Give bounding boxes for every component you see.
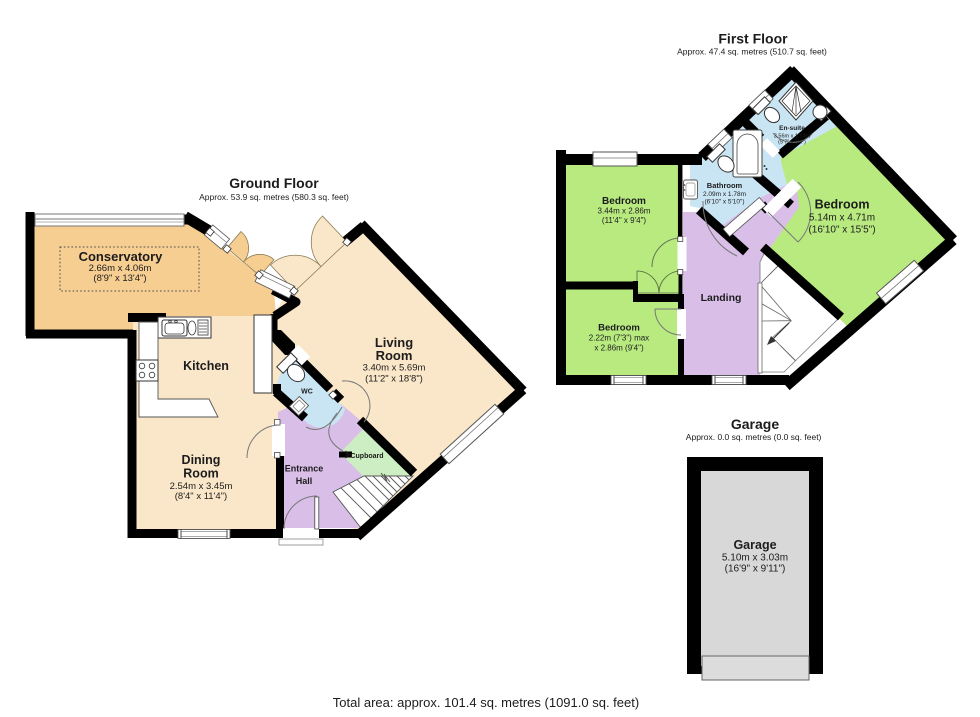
svg-text:First Floor: First Floor	[718, 31, 788, 47]
svg-text:(6'10" x 5'10"): (6'10" x 5'10")	[705, 199, 745, 206]
svg-text:Entrance: Entrance	[285, 464, 324, 474]
svg-text:Approx. 53.9 sq. metres (580.3: Approx. 53.9 sq. metres (580.3 sq. feet)	[199, 192, 349, 202]
svg-text:Bedroom: Bedroom	[815, 198, 870, 212]
svg-text:Dining: Dining	[182, 453, 221, 467]
svg-text:Conservatory: Conservatory	[79, 249, 164, 264]
svg-text:2.09m x 1.78m: 2.09m x 1.78m	[703, 191, 746, 198]
svg-text:Cupboard: Cupboard	[350, 453, 383, 460]
svg-text:5.10m x 3.03m: 5.10m x 3.03m	[722, 553, 788, 564]
svg-text:Garage: Garage	[731, 416, 779, 432]
svg-text:3.44m x 2.86m: 3.44m x 2.86m	[598, 207, 651, 216]
svg-text:Garage: Garage	[733, 538, 776, 552]
svg-text:Total area: approx. 101.4 sq.: Total area: approx. 101.4 sq. metres (10…	[333, 695, 639, 710]
svg-text:(11'2" x 18'8"): (11'2" x 18'8")	[365, 374, 423, 385]
svg-text:Bedroom: Bedroom	[602, 196, 646, 207]
svg-text:Room: Room	[183, 467, 218, 481]
svg-text:Bedroom: Bedroom	[598, 323, 640, 334]
svg-text:Ground Floor: Ground Floor	[229, 175, 319, 191]
svg-text:Kitchen: Kitchen	[183, 359, 229, 373]
svg-text:En-suite: En-suite	[779, 125, 805, 132]
svg-text:(16'10" x 15'5"): (16'10" x 15'5")	[808, 225, 875, 236]
svg-text:Approx. 0.0 sq. metres (0.0 sq: Approx. 0.0 sq. metres (0.0 sq. feet)	[686, 432, 822, 442]
svg-text:WC: WC	[301, 389, 313, 396]
svg-text:Approx. 47.4 sq. metres (510.7: Approx. 47.4 sq. metres (510.7 sq. feet)	[677, 47, 827, 57]
svg-text:5.14m x 4.71m: 5.14m x 4.71m	[809, 213, 875, 224]
svg-text:(8'4" x 11'4"): (8'4" x 11'4")	[175, 491, 227, 502]
svg-text:(16'9" x 9'11"): (16'9" x 9'11")	[725, 564, 786, 575]
svg-text:(11'4" x 9'4"): (11'4" x 9'4")	[602, 216, 646, 225]
svg-text:(8'9" x 13'4"): (8'9" x 13'4")	[93, 273, 146, 284]
svg-text:3.40m x 5.69m: 3.40m x 5.69m	[363, 363, 426, 374]
svg-text:(5'7" x 5'4"): (5'7" x 5'4")	[778, 140, 806, 146]
svg-text:2.22m (7'3") max: 2.22m (7'3") max	[589, 334, 649, 343]
svg-text:x 2.86m (9'4"): x 2.86m (9'4")	[594, 344, 644, 353]
svg-text:Hall: Hall	[296, 476, 313, 486]
svg-text:Bathroom: Bathroom	[707, 181, 743, 190]
svg-text:Room: Room	[376, 348, 413, 363]
svg-text:Landing: Landing	[701, 292, 742, 304]
